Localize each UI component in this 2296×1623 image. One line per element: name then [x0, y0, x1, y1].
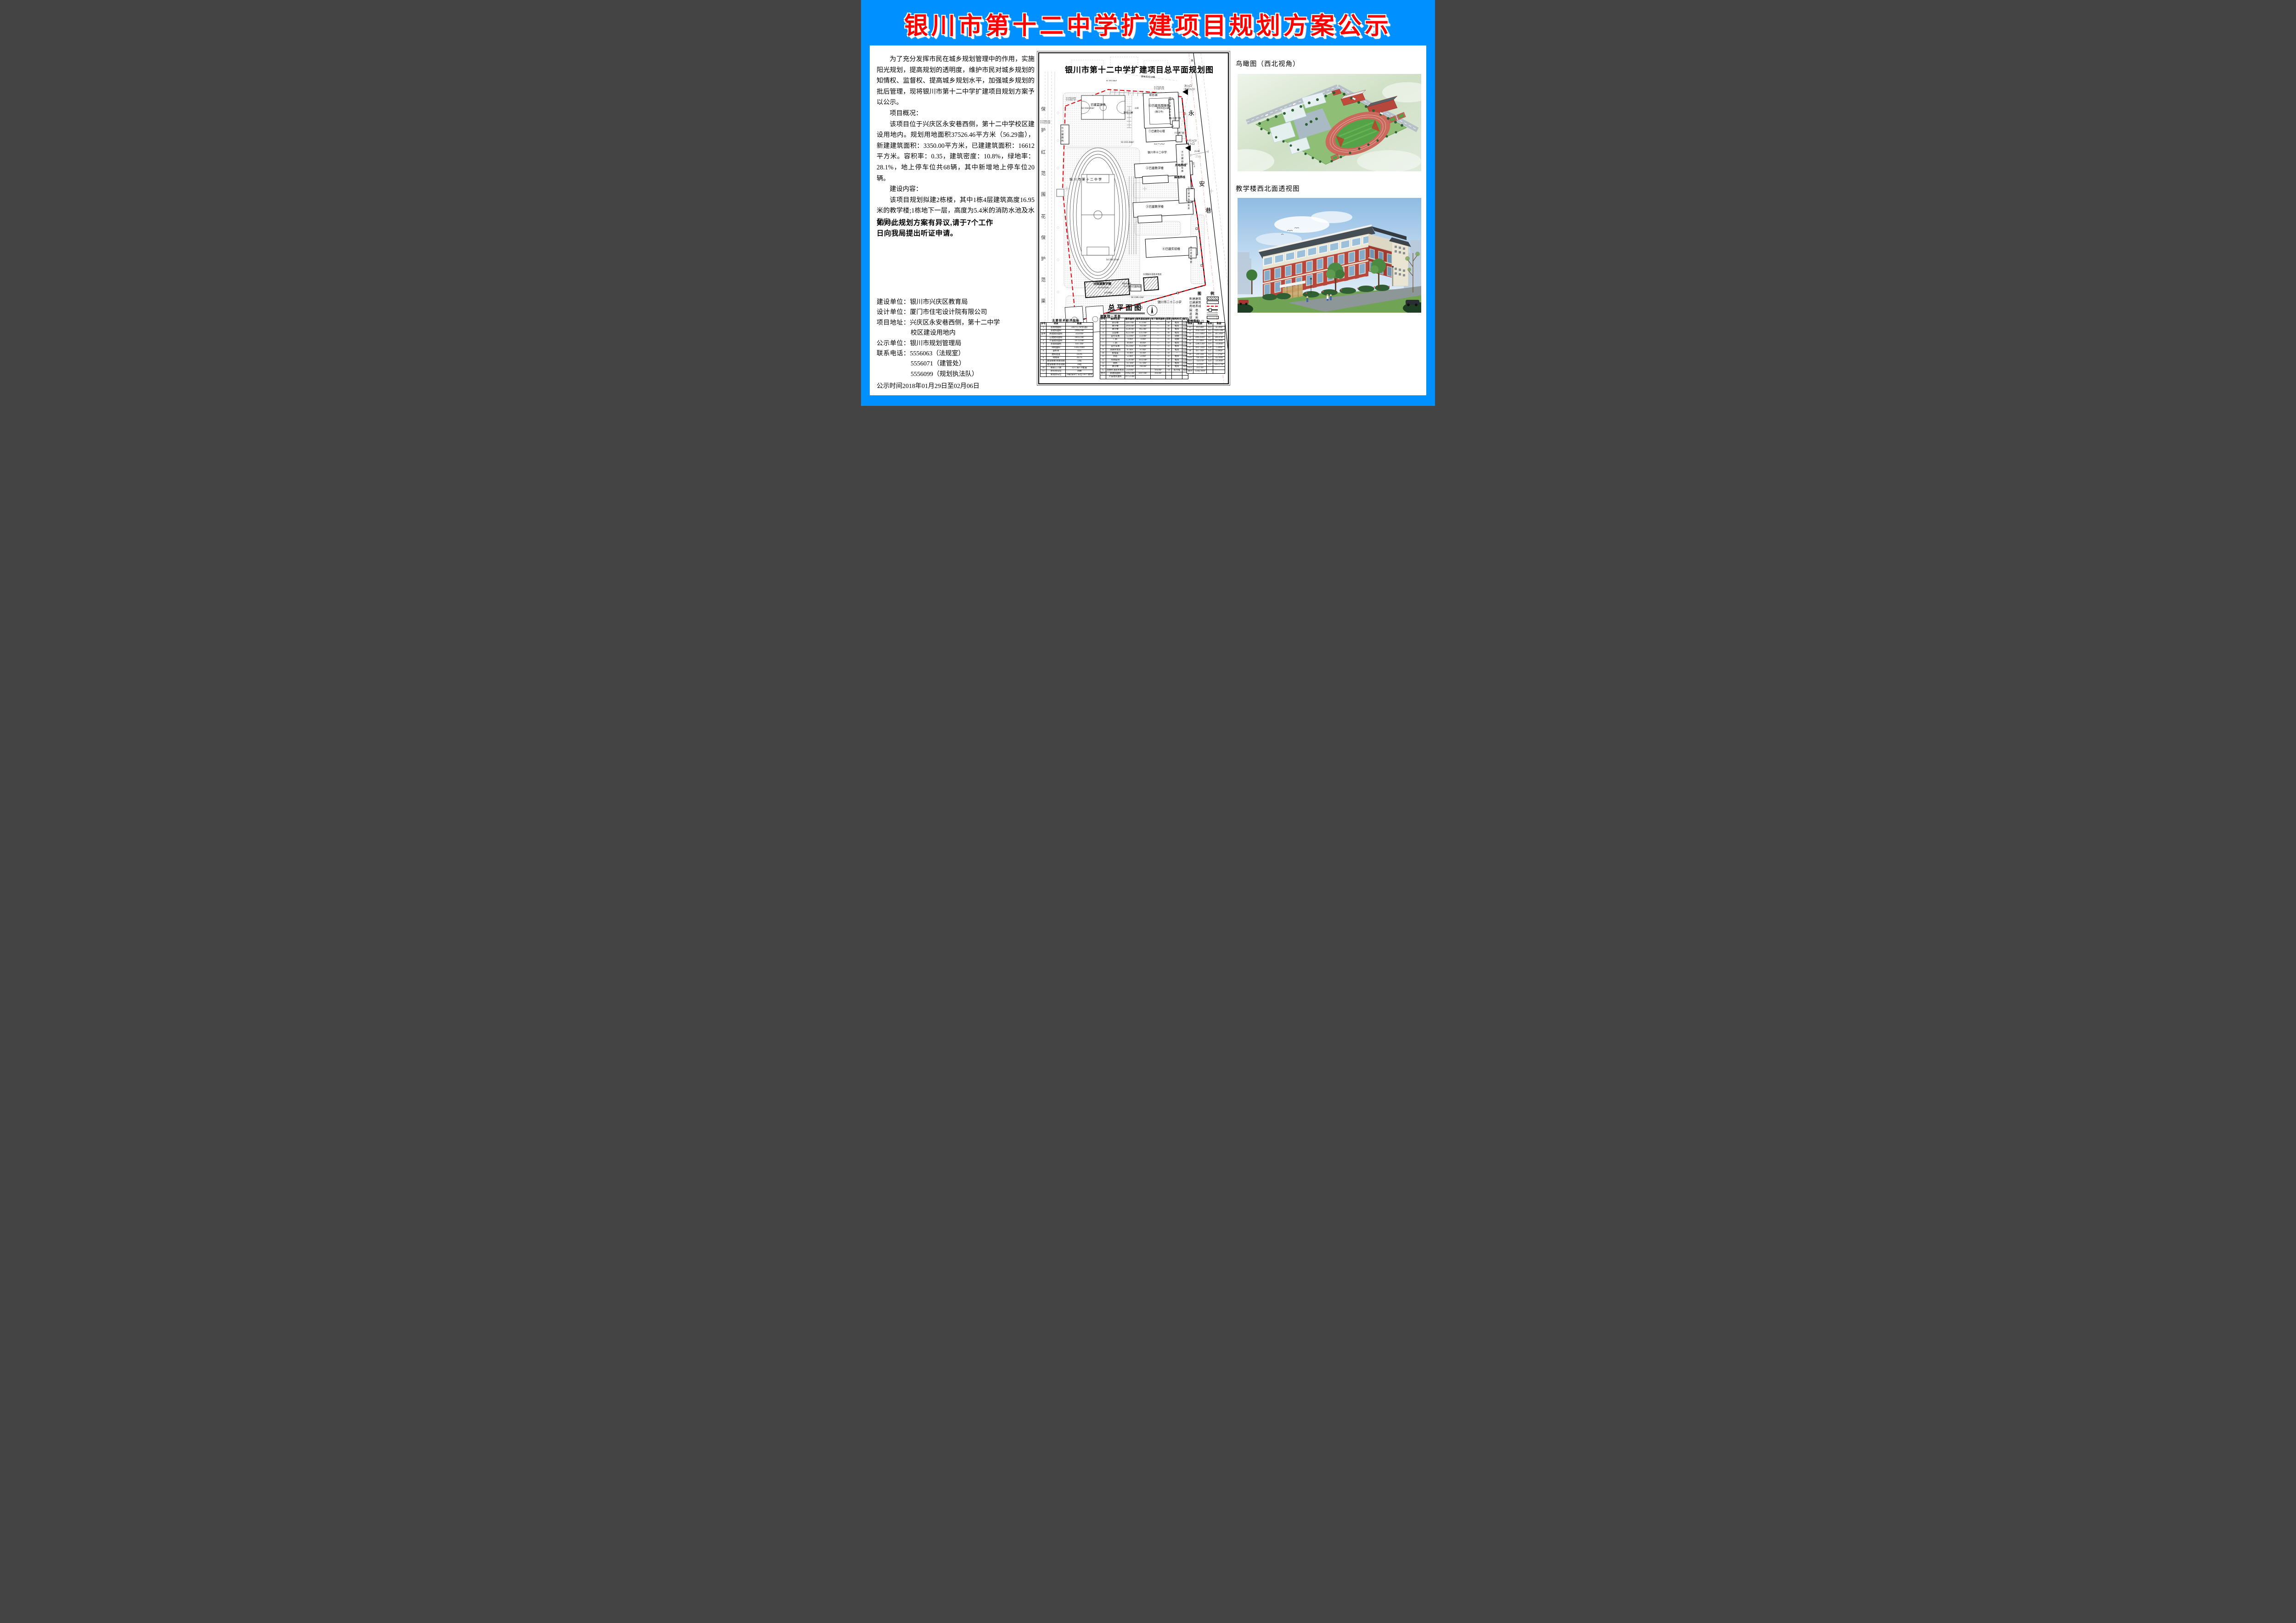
legend-title: 图 例: [1189, 291, 1225, 296]
canal-char: 渠: [1041, 299, 1046, 304]
table-cell: [1165, 376, 1171, 379]
table-cell: 48辆: [1066, 370, 1093, 373]
table-cell: 1F: [1165, 335, 1171, 338]
table-cell: [1100, 376, 1106, 379]
table-cell: 53.0m²: [1135, 355, 1150, 359]
dim-25: 25.00: [1194, 151, 1199, 153]
table-cell: 13: [1100, 362, 1106, 365]
table-cell: 20辆 按60个车位/100个教师: [1066, 373, 1093, 376]
table-cell: S8: [1187, 350, 1193, 353]
table-cell: 3: [1100, 328, 1106, 331]
table-cell: —: [1150, 331, 1165, 335]
bldg-lab-label: ④已建实验楼: [1162, 248, 1180, 251]
table-cell: 1012.27m²: [1213, 363, 1225, 366]
table-cell: 91.0m²: [1135, 352, 1150, 355]
table-cell: -: [1135, 369, 1150, 372]
canal-char: 护: [1041, 129, 1046, 134]
table-cell: 1F: [1165, 345, 1171, 348]
table-cell: 4: [1100, 331, 1106, 335]
table-cell: S20: [1206, 346, 1213, 349]
info-value: 银川市兴庆区教育局: [910, 299, 968, 306]
table-cell: 3350.0m²: [1066, 333, 1093, 336]
table-cell: S10: [1187, 356, 1193, 359]
info-line: 5556071（建管处）: [877, 359, 1037, 369]
table-cell: 12班: [1066, 360, 1093, 363]
table-cell: 框架: [1171, 359, 1182, 362]
info-line: 校区建设用地内: [877, 328, 1037, 338]
table-cell: 56679.57m²(85亩): [1066, 326, 1093, 329]
table-cell: S17: [1206, 336, 1213, 339]
table-cell: [1182, 376, 1188, 379]
court-label: 已建篮球场: [1091, 104, 1106, 107]
table-cell: 4: [1041, 343, 1047, 346]
table-cell: 53.0m²: [1125, 355, 1135, 359]
table-cell: 250.0m²: [1125, 369, 1135, 372]
table-cell: 673.0m²: [1135, 321, 1150, 325]
canal-char: 护: [1041, 257, 1046, 262]
table-cell: 门房: [1106, 342, 1125, 345]
intro-paragraph-4: 建设内容：: [877, 184, 1035, 195]
objection-notice: 如对此规划方案有异议,请于7个工作日向我局提出听证申请。: [877, 218, 997, 239]
table-cell: 5: [1041, 346, 1047, 349]
table-cell: 853.0m²: [1125, 345, 1135, 348]
floor-4f: 4F: [1171, 126, 1174, 128]
table-cell: 497.76m²: [1193, 350, 1206, 353]
table-cell: 6107.0m²: [1066, 343, 1093, 346]
table-cell: 9: [1100, 348, 1106, 352]
table-cell: 框架: [1171, 348, 1182, 352]
bldg-gate6-label: ⑥已建门房: [1171, 118, 1181, 120]
table-cell: 建筑面积: [1125, 318, 1135, 322]
table-cell: 绿地率: [1047, 356, 1066, 359]
table-cell: 19.17m²: [1193, 366, 1206, 370]
table-cell: 204.87m²: [1213, 336, 1225, 339]
table-cell: 建筑基底面积: [1135, 318, 1150, 322]
project-info-list: 建设单位：银川市兴庆区教育局设计单位：厦门市住宅设计院有限公司项目地址：兴庆区永…: [877, 298, 1037, 380]
table-cell: 237.00m²: [1193, 340, 1206, 343]
bldg-power-label: ⑩已建配电室: [1190, 246, 1192, 264]
table-cell: -1F: [1165, 369, 1171, 372]
legend-outline-icon: [1207, 301, 1219, 304]
table-cell: —: [1150, 345, 1165, 348]
table-cell: 117.0m²: [1125, 362, 1135, 365]
table-cell: S3: [1187, 333, 1193, 336]
table-cell: —: [1150, 365, 1165, 369]
table-cell: 自行车库: [1106, 335, 1125, 338]
table-cell: 3100.0m²: [1125, 365, 1135, 369]
table-cell: [1171, 376, 1182, 379]
table-cell: 绿地面积: [1047, 346, 1066, 349]
canal-char: 花: [1041, 215, 1046, 220]
legend-dots-icon: [1207, 316, 1219, 320]
table-cell: 104.0m²: [1150, 372, 1165, 375]
table-cell: S14: [1206, 326, 1213, 329]
table-cell: 91.0m²: [1125, 352, 1135, 355]
table-cell: 1047.35m²: [1193, 346, 1206, 349]
table-cell: 门房: [1106, 338, 1125, 342]
perspective-view-label: 教学楼西北面透视图: [1236, 184, 1300, 193]
table-cell: S25: [1206, 363, 1213, 366]
table-cell: [1041, 336, 1047, 339]
table-cell: 10: [1041, 366, 1047, 370]
school-name-inner: 银川市十二中学: [1148, 152, 1167, 154]
table-cell: 1515.0m²: [1135, 331, 1150, 335]
table-cell: —: [1150, 348, 1165, 352]
table-cell: 消防水泵房: [1106, 348, 1125, 352]
table-cell: 15942.99m²: [1066, 346, 1093, 349]
table-cell: 11: [1100, 355, 1106, 359]
table-cell: [1213, 366, 1225, 370]
table-cell: 消防水池及水泵房: [1106, 369, 1125, 372]
table-cell: 74.0m²: [1135, 338, 1150, 342]
perspective-render-illustration: [1238, 198, 1421, 313]
table-cell: 框架: [1171, 321, 1182, 325]
table-cell: S11: [1187, 360, 1193, 363]
s6-label: S6 1286.12m²: [1131, 297, 1144, 299]
table-cell: 序号: [1041, 323, 1047, 326]
page-title: 银川市第十二中学扩建项目规划方案公示: [861, 6, 1435, 41]
info-line: 项目地址：兴庆区永安巷西侧，第十二中学: [877, 318, 1037, 328]
table-cell: 509.13m²: [1193, 353, 1206, 356]
table-cell: 19712.0m²: [1125, 376, 1135, 379]
info-line: 联系电话：5556063（法规室）: [877, 349, 1037, 359]
canal-char: 保: [1041, 236, 1046, 241]
table-cell: 6107.0m²: [1135, 372, 1150, 375]
table-cell: 1F: [1165, 342, 1171, 345]
table-cell: 0.35: [1066, 350, 1093, 353]
table-cell: [1135, 376, 1150, 379]
table-cell: 15942.99m²: [1193, 370, 1206, 373]
table-cell: 新增停车位: [1047, 373, 1066, 376]
info-label: 建设单位：: [877, 299, 910, 306]
table-cell: [1165, 372, 1171, 375]
table-cell: S12: [1187, 363, 1193, 366]
info-label: 设计单位：: [877, 309, 910, 316]
table-cell: S1: [1187, 326, 1193, 329]
table-cell: 2910.0m²: [1125, 325, 1135, 328]
street-char-yong: 永: [1188, 110, 1194, 117]
table-cell: 自行车库: [1106, 345, 1125, 348]
table-cell: 1F: [1165, 362, 1171, 365]
table-cell: 87.0m²: [1125, 348, 1135, 352]
neighbor-school-label: 银川市二十二小学: [1158, 301, 1182, 304]
table-cell: 框架: [1171, 331, 1182, 335]
table-cell: 1F: [1165, 348, 1171, 352]
table-cell: 12: [1100, 359, 1106, 362]
table-cell: 办公楼: [1106, 321, 1125, 325]
table-cell: 5: [1100, 335, 1106, 338]
table-cell: 7: [1041, 353, 1047, 356]
table-cell: 2355.04m²: [1193, 333, 1206, 336]
table-cell: S21: [1206, 350, 1213, 353]
s3-label: S3 2355.04m²: [1121, 141, 1134, 144]
table-cell: 19962.0m²: [1125, 372, 1135, 375]
table-cell: [1041, 373, 1047, 376]
s4-label: S4 2085.65m²: [1106, 259, 1119, 261]
parking-add5-label: 新增5辆: [1149, 95, 1158, 97]
table-cell: 建筑密度: [1047, 353, 1066, 356]
table-cell: S4: [1187, 336, 1193, 339]
info-line: 设计单位：厦门市住宅设计院有限公司: [877, 308, 1037, 318]
table-cell: —: [1150, 335, 1165, 338]
info-value: 校区建设用地内: [911, 330, 956, 337]
table-cell: 2: [1041, 330, 1047, 333]
table-cell: 117.0m²: [1135, 362, 1150, 365]
info-label: 项目地址：: [877, 320, 910, 326]
table-cell: 已建建筑面积: [1047, 336, 1066, 339]
info-value: 5556099（规划执法队）: [911, 371, 978, 378]
table-cell: [1206, 366, 1213, 370]
table-cell: [1213, 370, 1225, 373]
table-cell: 框架: [1171, 362, 1182, 365]
publicity-period: 公示时间2018年01月29日至02月06日: [877, 381, 1042, 390]
table-cell: 87.0m²: [1135, 348, 1150, 352]
main-entrance-sub: （人行入口）: [1184, 140, 1198, 142]
table-cell: 77.27m²: [1213, 353, 1225, 356]
table-cell: 553.0m²: [1125, 335, 1135, 338]
intro-paragraphs: 为了充分发挥市民在城乡规划管理中的作用，实施阳光规划，提高规划的透明度，维护市民…: [877, 54, 1035, 228]
table-cell: 2085.65m²: [1193, 336, 1206, 339]
table-cell: S19: [1206, 343, 1213, 346]
table-cell: 14: [1100, 365, 1106, 369]
table-cell: 合计: [1100, 372, 1106, 375]
table-cell: —: [1150, 328, 1165, 331]
table-cell: 合计: [1187, 370, 1193, 373]
table-cell: 建筑性质: [1106, 318, 1125, 322]
street-char-an: 安: [1199, 181, 1205, 187]
floor-2f: 2F: [1169, 97, 1171, 100]
table-cell: 2F: [1165, 359, 1171, 362]
table-cell: 计容建筑面积: [1106, 376, 1125, 379]
table-cell: 数据: [1213, 323, 1225, 326]
dim-4: 4.00: [1135, 107, 1139, 110]
table-cell: 104.0m²: [1150, 369, 1165, 372]
table-cell: —: [1150, 342, 1165, 345]
street-char-water: 水: [1191, 60, 1193, 62]
table-cell: 74.0m²: [1125, 338, 1135, 342]
bldg-shop-label: ⑪已建商店: [1130, 286, 1141, 288]
s22-label: S22 77.27m²: [1154, 143, 1165, 146]
table-cell: 142.69m²: [1213, 356, 1225, 359]
table-cell: 框架: [1171, 325, 1182, 328]
bldg-office-label: ①已建办公楼: [1148, 130, 1165, 133]
table-cell: 15: [1100, 369, 1106, 372]
table-cell: S7: [1187, 346, 1193, 349]
notice-poster: 银川市第十二中学扩建项目规划方案公示 为了充分发挥市民在城乡规划管理中的作用，实…: [861, 0, 1435, 406]
coord-label: X=37649.286Y=51687.676: [1154, 86, 1164, 90]
legend-reddash-icon: [1207, 306, 1218, 307]
plan-subtitle: 总平面图: [1106, 305, 1145, 314]
intro-paragraph-1: 为了充分发挥市民在城乡规划管理中的作用，实施阳光规划，提高规划的透明度，维护市民…: [877, 54, 1035, 108]
table-cell: 2: [1100, 325, 1106, 328]
table-cell: 724.99m²: [1213, 360, 1225, 363]
table-cell: 9: [1041, 360, 1047, 363]
table-cell: 风雨操场: [1106, 359, 1125, 362]
table-cell: 总建筑面积: [1106, 372, 1125, 375]
table-cell: S5: [1187, 340, 1193, 343]
table-cell: 710.89m²: [1213, 343, 1225, 346]
tech-table-title: 主要技术经济指标: [1052, 318, 1080, 322]
table-cell: 结构形式: [1171, 318, 1182, 322]
bldg-toilet-label: ⑬已建厕所: [1061, 127, 1063, 143]
table-cell: —: [1150, 352, 1165, 355]
secondary-entrance-label: 次入口: [1184, 85, 1192, 88]
table-cell: 建设规模 新建班级: [1047, 360, 1066, 363]
bldg-teach3-label: ③已建教学楼: [1146, 206, 1164, 209]
legend-wall-icon: [1207, 309, 1218, 311]
bldg-gate7-label: ⑦已建门房: [1174, 132, 1185, 135]
table-cell: S6: [1187, 343, 1193, 346]
legend-hatched-icon: [1207, 297, 1219, 300]
table-cell: 配电室: [1106, 352, 1125, 355]
street-char-xiang: 巷: [1205, 208, 1211, 214]
canal-char: 红: [1041, 151, 1046, 156]
table-cell: 4F: [1165, 328, 1171, 331]
table-cell: 4F: [1165, 365, 1171, 369]
info-value: 厦门市住宅设计院有限公司: [910, 309, 987, 316]
table-cell: 新建建筑面积: [1047, 333, 1066, 336]
table-cell: 框架: [1171, 342, 1182, 345]
table-cell: —: [1150, 362, 1165, 365]
table-cell: 6: [1100, 338, 1106, 342]
table-cell: 框架: [1171, 328, 1182, 331]
info-line: 公示单位：银川市规划管理局: [877, 339, 1037, 349]
info-line: 建设单位：银川市兴庆区教育局: [877, 298, 1037, 308]
table-cell: 46.0m²: [1125, 342, 1135, 345]
building-list-table: 序号建筑性质建筑面积建筑基底面积地下建筑面积层数结构形式备注1办公楼2247.0…: [1100, 318, 1188, 379]
table-cell: 6: [1041, 350, 1047, 353]
table-cell: 2247.0m²: [1125, 321, 1135, 325]
table-cell: 1042.92m²: [1193, 330, 1206, 333]
table-cell: 地下建筑面积: [1150, 318, 1165, 322]
table-cell: S23: [1206, 356, 1213, 359]
table-cell: S2: [1187, 330, 1193, 333]
table-cell: 8: [1100, 345, 1106, 348]
water-tank-label: 消防水箱间: [1122, 283, 1131, 285]
info-value: 银川市规划管理局: [910, 340, 962, 347]
table-cell: 厕所: [1106, 362, 1125, 365]
table-cell: 742.67m²: [1193, 360, 1206, 363]
table-cell: 3528.0m²: [1125, 328, 1135, 331]
canal-char: 范: [1041, 172, 1046, 177]
table-cell: 容积率: [1047, 350, 1066, 353]
table-cell: 19962.0m²: [1066, 330, 1093, 333]
table-cell: 4F: [1165, 325, 1171, 328]
table-cell: 项目: [1187, 323, 1193, 326]
table-cell: 783.0m²: [1135, 325, 1150, 328]
bldg-teach2-label: ②已建教学楼: [1146, 167, 1164, 170]
table-cell: 46.0m²: [1135, 342, 1150, 345]
canal-char: 保: [1041, 107, 1046, 112]
s2-label: S2 1042.92m²: [1081, 107, 1094, 110]
bldg-new-teach-height: H=16.95m: [1098, 287, 1109, 290]
table-cell: 序号: [1100, 318, 1106, 322]
intro-paragraph-3: 该项目位于兴庆区永安巷西侧，第十二中学校区建设用地内。规划用地面积37526.4…: [877, 119, 1035, 185]
table-cell: 760.0m²: [1135, 365, 1150, 369]
info-value: 5556071（建管处）: [911, 360, 965, 367]
table-cell: 1: [1041, 326, 1047, 329]
bldg-firepool-label: ⑮消防水池及水泵房: [1143, 274, 1162, 276]
plan-title: 银川市第十二中学扩建项目总平面规划图: [1065, 66, 1203, 74]
info-value: 5556063（法规室）: [910, 350, 965, 357]
table-cell: —: [1150, 359, 1165, 362]
table-cell: 72.89m²: [1213, 346, 1225, 349]
table-cell: 391.64m²: [1193, 326, 1206, 329]
bldg-bikegarage-label: ⑧已建自行车库: [1181, 151, 1183, 173]
table-cell: 数据: [1066, 323, 1093, 326]
table-cell: S13: [1187, 366, 1193, 370]
table-cell: 项目: [1206, 323, 1213, 326]
table-cell: 1528.0m²: [1125, 359, 1135, 362]
info-value: 兴庆区永安巷西侧，第十二中学: [910, 320, 1000, 326]
parking-add15-label: 新增15辆: [1124, 112, 1133, 114]
s1-label: S1 391.64m²: [1106, 80, 1117, 82]
canal-char: 围: [1041, 193, 1046, 198]
table-cell: 10.8%: [1066, 353, 1093, 356]
coord-label: X=37634.859Y=51563.747: [1066, 97, 1076, 101]
table-cell: [1171, 372, 1182, 375]
perspective-render-image: [1238, 198, 1421, 313]
canal-char: 范: [1041, 278, 1046, 283]
table-cell: 层数: [1165, 318, 1171, 322]
table-cell: 框架: [1171, 365, 1182, 369]
table-cell: 建设规模 原有班级: [1047, 363, 1066, 366]
school-name-on-field: 银川市第十二中学: [1069, 178, 1103, 181]
table-cell: 1: [1100, 321, 1106, 325]
table-cell: 其中: [1041, 333, 1047, 336]
dim-164: 164.70: [1192, 162, 1195, 168]
bldg-firepump-label: ⑨已建消防水泵房: [1187, 186, 1190, 210]
table-cell: 实验楼: [1106, 331, 1125, 335]
table-cell: 13.88m²: [1213, 350, 1225, 353]
floor-5f: 5F: [1185, 163, 1187, 166]
table-cell: 原有停车位: [1047, 370, 1066, 373]
table-cell: 剪力墙: [1171, 369, 1182, 372]
table-cell: 8: [1041, 356, 1047, 359]
table-cell: 轻钢: [1171, 338, 1182, 342]
main-entrance-label: 主入口: [1187, 143, 1195, 146]
table-cell: 383.58m²: [1213, 333, 1225, 336]
table-cell: 1F: [1165, 352, 1171, 355]
table-cell: S16: [1206, 333, 1213, 336]
table-cell: 28.1%: [1066, 356, 1093, 359]
table-cell: —: [1150, 338, 1165, 342]
table-cell: 1286.12m²: [1193, 343, 1206, 346]
table-cell: 计容建筑面积: [1047, 340, 1066, 343]
table-cell: 16612.0m²: [1066, 336, 1093, 339]
table-cell: 数据: [1193, 323, 1206, 326]
table-cell: 1026.50m²: [1213, 330, 1225, 333]
table-cell: —: [1150, 355, 1165, 359]
site-plan: 银川市第十二中学扩建项目总平面规划图 银川市第十二中学 银川市十二中学 银川市二…: [1038, 52, 1229, 384]
table-cell: 1F: [1165, 355, 1171, 359]
table-cell: [1206, 370, 1213, 373]
table-cell: 553.0m²: [1135, 335, 1150, 338]
table-cell: 56.91m²: [1193, 363, 1206, 366]
table-cell: 4525.0m²: [1125, 331, 1135, 335]
info-label: 公示单位：: [877, 340, 910, 347]
legend-road-icon: [1207, 313, 1218, 315]
table-cell: 框架: [1171, 345, 1182, 348]
wall-boundary-label: 围墙界线: [1174, 176, 1185, 179]
table-cell: 教学楼: [1106, 325, 1125, 328]
level-label: (±0.000): [1104, 292, 1112, 294]
table-cell: 766.32m²: [1193, 356, 1206, 359]
coord-label: X=37608.436Y=51513.546: [1040, 120, 1050, 124]
table-cell: 30班: [1066, 363, 1093, 366]
parking-20-label: 原有车位20辆: [1157, 107, 1169, 110]
table-cell: 商店: [1106, 355, 1125, 359]
